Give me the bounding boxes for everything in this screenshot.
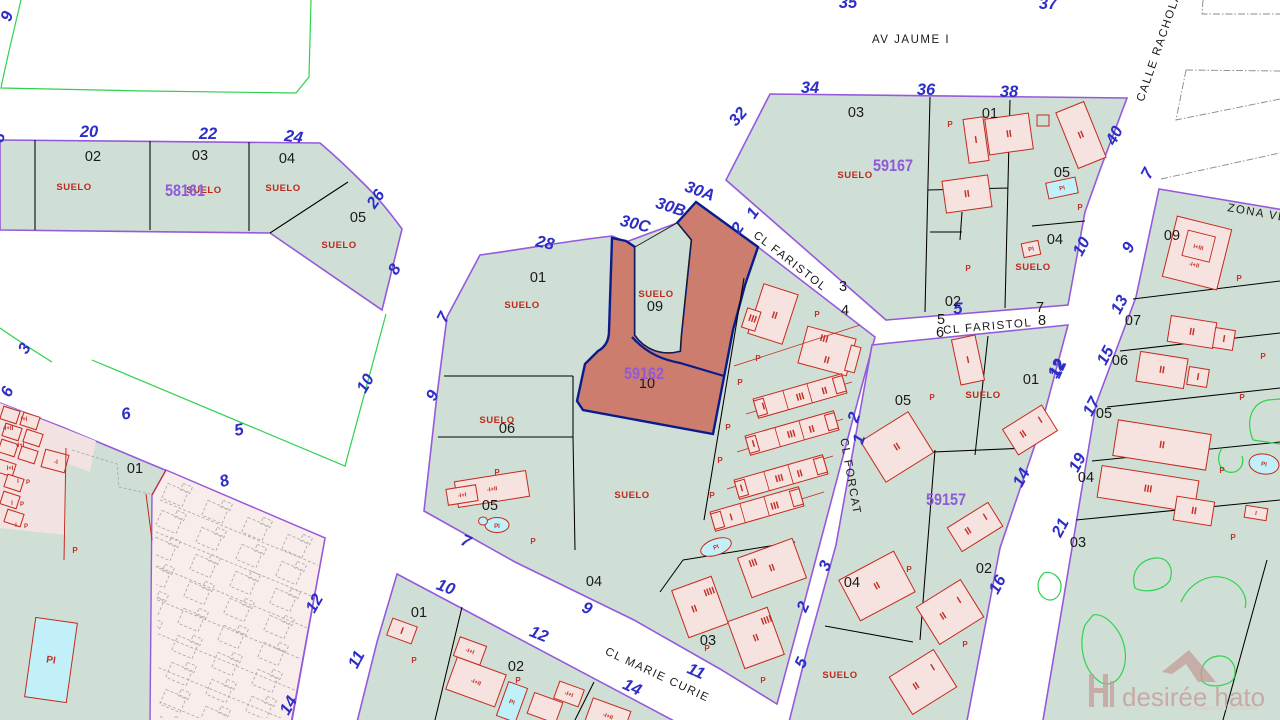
- svg-text:P: P: [26, 480, 30, 486]
- svg-text:4: 4: [841, 303, 849, 319]
- svg-text:P: P: [929, 393, 935, 402]
- svg-text:09: 09: [647, 299, 663, 315]
- svg-text:SUELO: SUELO: [56, 182, 91, 193]
- svg-text:SUELO: SUELO: [822, 670, 857, 681]
- svg-text:P: P: [709, 491, 715, 500]
- svg-text:07: 07: [1125, 313, 1141, 329]
- svg-text:P: P: [737, 378, 743, 387]
- svg-text:SUELO: SUELO: [265, 183, 300, 194]
- svg-text:P: P: [814, 310, 820, 319]
- svg-text:SUELO: SUELO: [504, 300, 539, 311]
- svg-text:SUELO: SUELO: [321, 240, 356, 251]
- svg-text:P: P: [494, 468, 500, 477]
- svg-text:09: 09: [1164, 228, 1180, 244]
- svg-text:SUELO: SUELO: [638, 289, 673, 300]
- svg-text:22: 22: [198, 125, 217, 143]
- svg-text:P: P: [755, 354, 761, 363]
- svg-text:34: 34: [801, 79, 819, 97]
- svg-text:-I: -I: [54, 460, 58, 466]
- svg-text:P: P: [20, 502, 24, 508]
- svg-text:P: P: [962, 640, 968, 649]
- svg-text:36: 36: [917, 81, 936, 99]
- svg-text:P: P: [530, 537, 536, 546]
- svg-text:24: 24: [282, 127, 304, 148]
- svg-text:P: P: [411, 656, 417, 665]
- svg-text:04: 04: [1047, 232, 1063, 248]
- svg-text:P: P: [1077, 203, 1083, 212]
- svg-text:59162: 59162: [624, 364, 664, 383]
- svg-text:05: 05: [1054, 165, 1070, 181]
- svg-text:P: P: [1230, 533, 1236, 542]
- svg-text:38: 38: [1000, 83, 1019, 101]
- svg-text:P: P: [965, 264, 971, 273]
- svg-text:PI: PI: [45, 654, 56, 666]
- svg-text:37: 37: [1039, 0, 1058, 13]
- svg-text:03: 03: [848, 105, 864, 121]
- svg-text:P: P: [1239, 393, 1245, 402]
- svg-text:AV JAUME I: AV JAUME I: [872, 34, 950, 46]
- svg-text:P: P: [515, 676, 521, 685]
- svg-text:P: P: [1219, 466, 1225, 475]
- svg-text:01: 01: [411, 605, 427, 621]
- svg-text:02: 02: [976, 561, 992, 577]
- svg-text:02: 02: [508, 659, 524, 675]
- svg-text:58161: 58161: [165, 181, 205, 200]
- svg-text:P: P: [24, 524, 28, 530]
- svg-text:-I+I: -I+I: [16, 443, 25, 449]
- svg-text:I+I: I+I: [21, 417, 28, 423]
- svg-text:04: 04: [1078, 470, 1094, 486]
- svg-text:20: 20: [79, 123, 99, 141]
- svg-text:P: P: [1260, 352, 1266, 361]
- svg-text:8: 8: [1038, 313, 1046, 329]
- svg-text:PI: PI: [494, 524, 500, 530]
- svg-text:SUELO: SUELO: [965, 390, 1000, 401]
- svg-text:P: P: [906, 565, 912, 574]
- svg-text:P: P: [717, 456, 723, 465]
- svg-text:59167: 59167: [873, 156, 913, 175]
- svg-text:01: 01: [982, 106, 998, 122]
- svg-text:05: 05: [482, 498, 498, 514]
- svg-text:35: 35: [839, 0, 858, 12]
- svg-text:P: P: [947, 120, 953, 129]
- svg-text:I+I: I+I: [7, 466, 14, 472]
- svg-text:-I+II: -I+II: [3, 426, 14, 432]
- svg-text:P: P: [72, 546, 78, 555]
- svg-text:3: 3: [839, 279, 847, 295]
- svg-text:01: 01: [1023, 372, 1039, 388]
- svg-text:59157: 59157: [926, 490, 966, 509]
- svg-text:P: P: [725, 423, 731, 432]
- svg-text:SUELO: SUELO: [837, 170, 872, 181]
- svg-text:03: 03: [1070, 535, 1086, 551]
- svg-text:P: P: [704, 644, 710, 653]
- svg-text:P: P: [1236, 274, 1242, 283]
- svg-text:02: 02: [85, 149, 101, 165]
- svg-text:SUELO: SUELO: [614, 490, 649, 501]
- svg-text:01: 01: [530, 270, 546, 286]
- svg-text:06: 06: [1112, 353, 1128, 369]
- svg-text:05: 05: [350, 210, 366, 226]
- svg-text:SUELO: SUELO: [479, 415, 514, 426]
- svg-text:04: 04: [844, 575, 860, 591]
- svg-text:05: 05: [895, 393, 911, 409]
- svg-text:03: 03: [192, 148, 208, 164]
- svg-text:sus asesores inmobiliarios: sus asesores inmobiliarios: [1188, 706, 1258, 712]
- svg-text:SUELO: SUELO: [1015, 262, 1050, 273]
- svg-text:05: 05: [1096, 406, 1112, 422]
- svg-text:02: 02: [945, 294, 961, 310]
- svg-text:01: 01: [127, 461, 143, 477]
- svg-text:04: 04: [279, 151, 295, 167]
- svg-text:P: P: [760, 676, 766, 685]
- svg-text:6: 6: [936, 325, 944, 341]
- svg-text:04: 04: [586, 574, 602, 590]
